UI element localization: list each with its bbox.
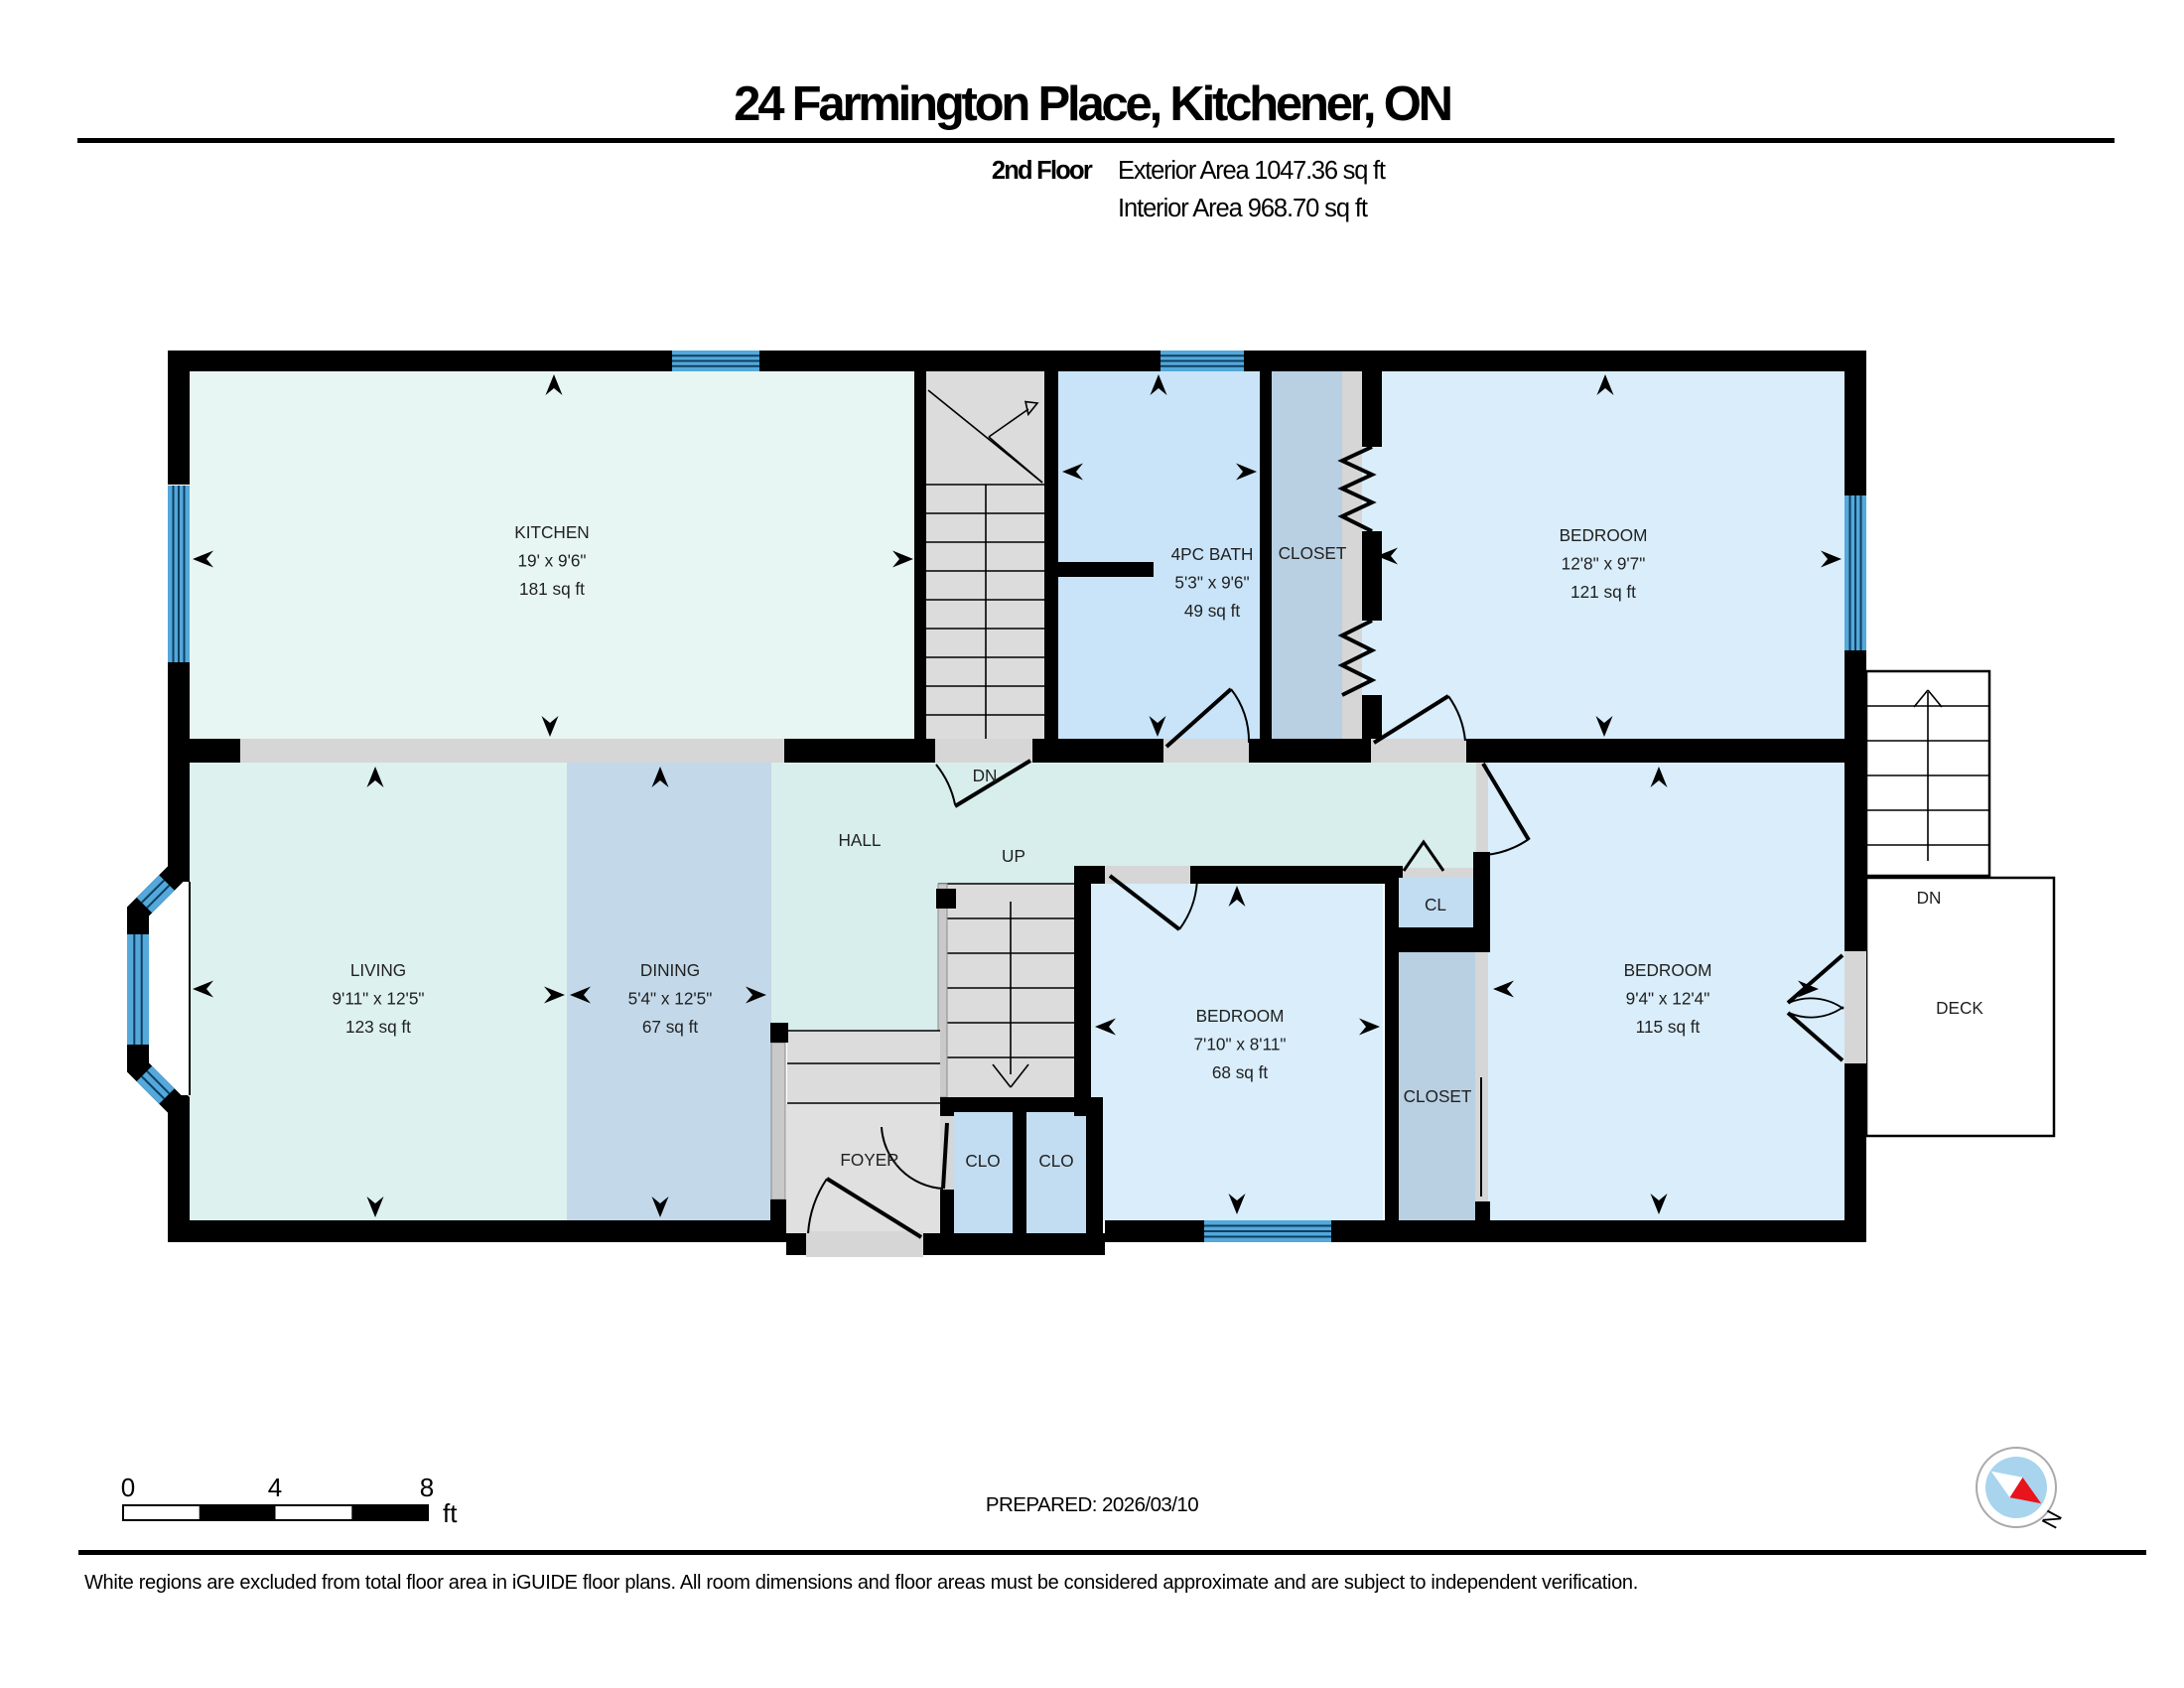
svg-text:LIVING: LIVING	[350, 960, 406, 980]
svg-text:BEDROOM: BEDROOM	[1196, 1006, 1285, 1026]
svg-text:49 sq ft: 49 sq ft	[1184, 601, 1241, 621]
svg-text:8: 8	[420, 1473, 434, 1502]
svg-text:PREPARED: 2026/03/10: PREPARED: 2026/03/10	[986, 1493, 1198, 1516]
svg-text:9'4" x 12'4": 9'4" x 12'4"	[1626, 989, 1710, 1009]
svg-text:123 sq ft: 123 sq ft	[345, 1017, 411, 1037]
svg-text:5'3" x 9'6": 5'3" x 9'6"	[1174, 573, 1249, 593]
svg-text:68 sq ft: 68 sq ft	[1212, 1062, 1269, 1082]
svg-text:7'10" x 8'11": 7'10" x 8'11"	[1194, 1035, 1287, 1055]
svg-text:67 sq ft: 67 sq ft	[642, 1017, 699, 1037]
svg-text:181 sq ft: 181 sq ft	[519, 579, 585, 599]
svg-text:19' x 9'6": 19' x 9'6"	[517, 551, 586, 571]
svg-text:Exterior Area 1047.36 sq ft: Exterior Area 1047.36 sq ft	[1118, 157, 1386, 185]
svg-text:24 Farmington Place, Kitchener: 24 Farmington Place, Kitchener, ON	[734, 77, 1451, 131]
svg-text:ft: ft	[443, 1498, 458, 1528]
svg-text:White regions are excluded fro: White regions are excluded from total fl…	[84, 1572, 1638, 1594]
svg-text:4: 4	[268, 1473, 282, 1502]
svg-text:CL: CL	[1425, 895, 1446, 914]
svg-text:0: 0	[121, 1473, 135, 1502]
svg-text:FOYER: FOYER	[840, 1150, 898, 1170]
svg-text:115 sq ft: 115 sq ft	[1636, 1017, 1701, 1037]
svg-text:4PC BATH: 4PC BATH	[1171, 544, 1254, 564]
svg-text:DECK: DECK	[1936, 998, 1983, 1018]
svg-text:CLO: CLO	[1038, 1151, 1073, 1171]
svg-text:KITCHEN: KITCHEN	[514, 522, 589, 542]
svg-text:BEDROOM: BEDROOM	[1624, 960, 1712, 980]
svg-text:DN: DN	[1917, 888, 1942, 908]
svg-text:BEDROOM: BEDROOM	[1560, 525, 1648, 545]
svg-text:121 sq ft: 121 sq ft	[1570, 582, 1636, 602]
svg-text:HALL: HALL	[839, 830, 882, 850]
svg-text:UP: UP	[1002, 846, 1025, 866]
svg-text:Interior Area 968.70 sq ft: Interior Area 968.70 sq ft	[1118, 195, 1368, 222]
svg-text:CLO: CLO	[965, 1151, 1000, 1171]
svg-text:CLOSET: CLOSET	[1404, 1086, 1472, 1106]
svg-text:5'4" x 12'5": 5'4" x 12'5"	[628, 989, 713, 1009]
svg-text:2nd Floor: 2nd Floor	[992, 157, 1093, 185]
svg-text:DINING: DINING	[640, 960, 700, 980]
svg-text:CLOSET: CLOSET	[1279, 543, 1347, 563]
svg-text:12'8" x 9'7": 12'8" x 9'7"	[1562, 554, 1646, 574]
svg-text:9'11" x 12'5": 9'11" x 12'5"	[333, 989, 425, 1009]
svg-text:DN: DN	[973, 766, 998, 785]
